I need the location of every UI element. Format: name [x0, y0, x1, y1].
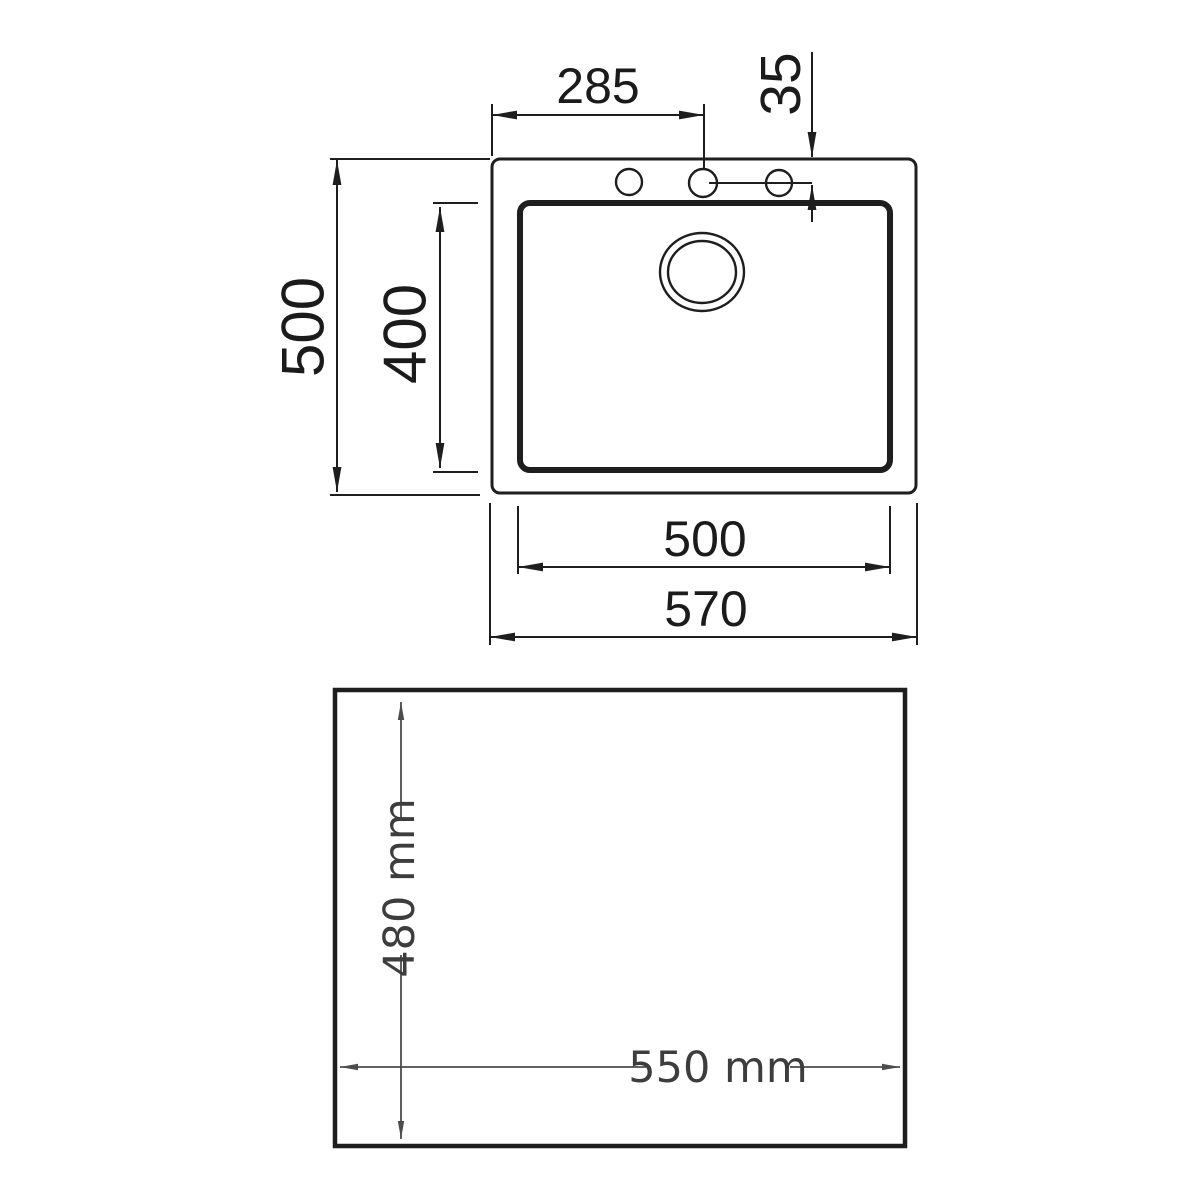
- dim-35-label: 35: [749, 52, 813, 115]
- dim-285-label: 285: [556, 58, 639, 114]
- faucet-hole-left: [616, 169, 642, 195]
- cutout-view: 480 mm 550 mm: [335, 690, 905, 1146]
- sink-dimension-drawing: 285 35 500 400 500 570: [0, 0, 1200, 1200]
- drawing-page: 285 35 500 400 500 570: [0, 0, 1200, 1200]
- dim-500-depth-label: 500: [270, 277, 337, 377]
- sink-top-view: 285 35 500 400 500 570: [270, 52, 918, 645]
- dim-400-label: 400: [372, 284, 439, 384]
- dim-500-width-label: 500: [663, 511, 746, 567]
- drain-outer-circle: [660, 233, 744, 311]
- drain-inner-circle: [668, 241, 736, 303]
- dim-480-label: 480 mm: [375, 798, 425, 978]
- sink-bowl-edge: [520, 203, 890, 470]
- dim-550-label: 550 mm: [628, 1043, 808, 1093]
- dim-570-label: 570: [664, 581, 747, 637]
- sink-outer-edge: [492, 159, 916, 493]
